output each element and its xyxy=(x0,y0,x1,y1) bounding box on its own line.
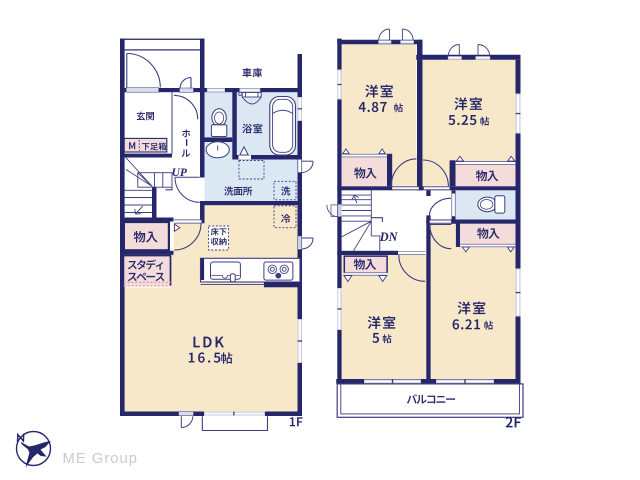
svg-text:UP: UP xyxy=(172,167,188,179)
svg-text:DN: DN xyxy=(379,230,399,244)
svg-text:ME Group: ME Group xyxy=(63,451,138,467)
